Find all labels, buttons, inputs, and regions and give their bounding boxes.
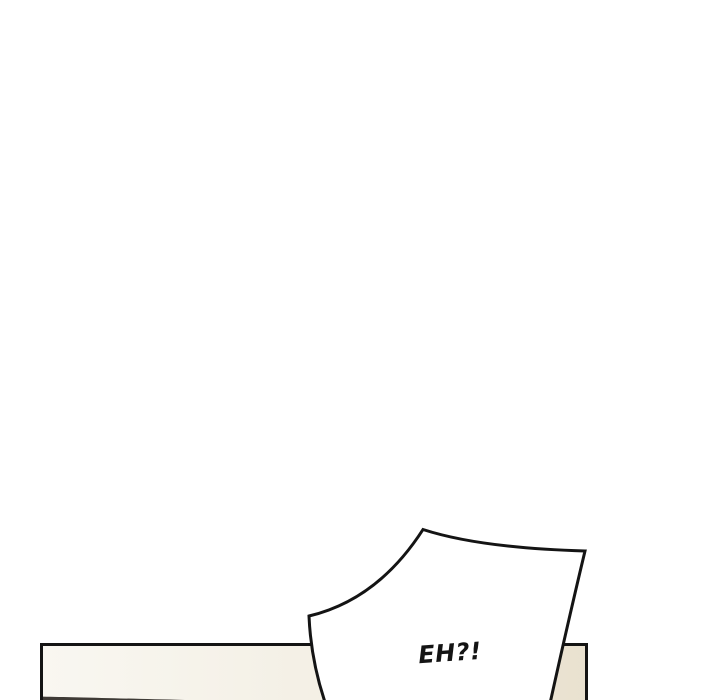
comic-artwork xyxy=(0,0,720,700)
speech-bubble xyxy=(309,530,585,700)
webtoon-strip: EH?! xyxy=(0,0,720,700)
speech-bubble-text: EH?! xyxy=(403,636,497,672)
